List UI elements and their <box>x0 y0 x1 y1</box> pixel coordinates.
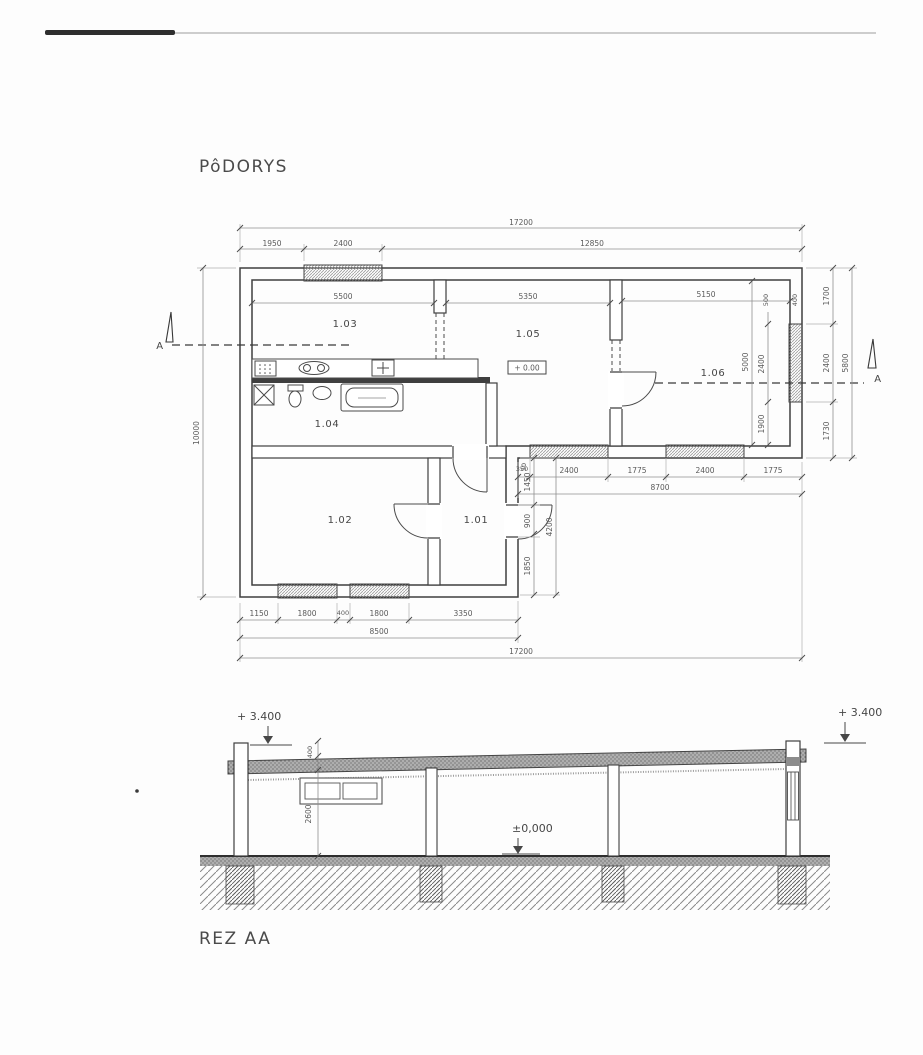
dim-right-seg1: 1700 <box>822 286 831 305</box>
dim-top-seg2: 2400 <box>333 239 352 248</box>
interior-wall-102-101-low <box>428 538 440 585</box>
dim-mid-seg3: 1775 <box>627 466 646 475</box>
level-roof-left-label: + 3.400 <box>237 710 281 723</box>
level-roof-left: + 3.400 <box>237 710 292 745</box>
dim-right-seg2: 2400 <box>822 353 831 372</box>
interior-wall-105-106-low <box>610 408 622 446</box>
dim-room-106-width: 5150 <box>696 290 715 299</box>
bathroom-fixtures <box>254 384 403 411</box>
level-roof-right: + 3.400 <box>824 706 882 743</box>
section-drawing: 400 2600 + 3.400 + 3.400 ±0,000 <box>200 706 882 910</box>
level-zero-label: ±0,000 <box>512 822 553 835</box>
room-label-106: 1.06 <box>701 368 726 379</box>
plan-outer-wall <box>240 268 802 597</box>
floor-plan: + 0.00 A A 1.03 1.05 1.06 1.04 1.02 1.01… <box>156 218 881 662</box>
dim-notch-seg3: 1850 <box>523 556 532 575</box>
section-title: REZ AA <box>199 929 271 949</box>
dim-notch-total: 4200 <box>545 517 554 536</box>
dim-bottom-seg1: 1150 <box>249 609 268 618</box>
scanned-drawing-page: PôDORYS REZ AA <box>0 0 923 1055</box>
dim-right-total: 5800 <box>841 353 850 372</box>
window-top <box>304 265 382 281</box>
door-102-101 <box>394 503 442 539</box>
section-marker-right: A <box>874 374 881 385</box>
kitchen-counter <box>252 359 478 378</box>
level-marker-label: + 0.00 <box>514 364 540 373</box>
dim-notch-seg2: 900 <box>523 514 532 529</box>
drawing-svg: PôDORYS REZ AA <box>0 0 923 1055</box>
dim-bottom-seg4: 1800 <box>369 609 388 618</box>
scan-edge-mark <box>45 30 175 35</box>
section-window-right <box>788 772 799 820</box>
dim-106-below: 1900 <box>757 414 766 433</box>
dim-notch-small: 50 <box>520 463 528 471</box>
section-wall-mid2 <box>608 765 619 856</box>
interior-wall-102-101-up <box>428 458 440 504</box>
dim-right-seg3: 1730 <box>822 421 831 440</box>
door-105-106 <box>608 371 656 409</box>
window-right-wall <box>789 324 802 402</box>
dim-bottom-seg3: 400 <box>337 609 349 617</box>
dim-mid-seg2: 2400 <box>559 466 578 475</box>
window-bottom-left <box>278 584 337 598</box>
floor-slab <box>200 857 830 866</box>
section-flag-right <box>868 339 876 368</box>
room-label-103: 1.03 <box>333 319 358 330</box>
dim-notch-seg1: 1450 <box>523 472 532 491</box>
dim-mid-total: 8700 <box>650 483 669 492</box>
dim-mid-seg5: 1775 <box>763 466 782 475</box>
foundation-mid2 <box>602 866 624 902</box>
room-label-104: 1.04 <box>315 419 340 430</box>
dim-room-105-width: 5350 <box>518 292 537 301</box>
wc-tank <box>288 385 303 391</box>
dim-left-total: 10000 <box>192 421 201 445</box>
doorway-dashed-106 <box>612 340 620 372</box>
section-flag-left <box>166 312 173 342</box>
dim-bottom-seg2: 1800 <box>297 609 316 618</box>
dim-106-top1: 500 <box>762 294 770 306</box>
window-mid-right <box>666 445 744 458</box>
dim-106-window: 2400 <box>757 354 766 373</box>
ground-hatch <box>200 866 830 910</box>
dim-top-seg3: 12850 <box>580 239 604 248</box>
interior-wall-105-106 <box>610 280 622 340</box>
dim-top-total: 17200 <box>509 218 533 227</box>
level-roof-right-label: + 3.400 <box>838 706 882 719</box>
wc-bowl <box>289 391 301 407</box>
level-zero: ±0,000 <box>502 822 553 854</box>
dim-top-seg1: 1950 <box>262 239 281 248</box>
dim-bottom-total: 17200 <box>509 647 533 656</box>
washbasin <box>313 387 331 400</box>
plan-title: PôDORYS <box>199 157 288 177</box>
section-wall-mid1 <box>426 768 437 856</box>
section-wall-left <box>234 743 248 856</box>
scan-artifacts <box>45 30 876 793</box>
room-label-105: 1.05 <box>516 329 541 340</box>
interior-wall-bath-right <box>486 383 497 446</box>
foundation-right <box>778 866 806 904</box>
kitchen-fixtures <box>252 359 478 378</box>
foundation-mid1 <box>420 866 442 902</box>
room-label-102: 1.02 <box>328 515 353 526</box>
dim-106-height: 5000 <box>741 352 750 371</box>
dim-room-103-width: 5500 <box>333 292 352 301</box>
dim-106-top2: 400 <box>791 294 799 306</box>
dim-bottom-seg5: 3350 <box>453 609 472 618</box>
dim-bottom-sub: 8500 <box>369 627 388 636</box>
roof-slab <box>228 749 806 774</box>
level-marker: + 0.00 <box>508 361 546 374</box>
dim-mid-seg4: 2400 <box>695 466 714 475</box>
dim-roof-height: 400 <box>306 746 314 758</box>
interior-wall-103-105 <box>434 280 446 313</box>
window-bottom-right <box>350 584 409 598</box>
dim-room-height: 2600 <box>304 804 313 823</box>
section-high-window <box>300 778 382 804</box>
room-label-101: 1.01 <box>464 515 489 526</box>
section-marker-left: A <box>156 341 163 352</box>
foundation-left <box>226 866 254 904</box>
door-101-hall <box>452 444 489 492</box>
roof-bearing-block <box>786 757 800 766</box>
scan-speck <box>135 789 139 793</box>
window-mid-left <box>530 445 608 458</box>
